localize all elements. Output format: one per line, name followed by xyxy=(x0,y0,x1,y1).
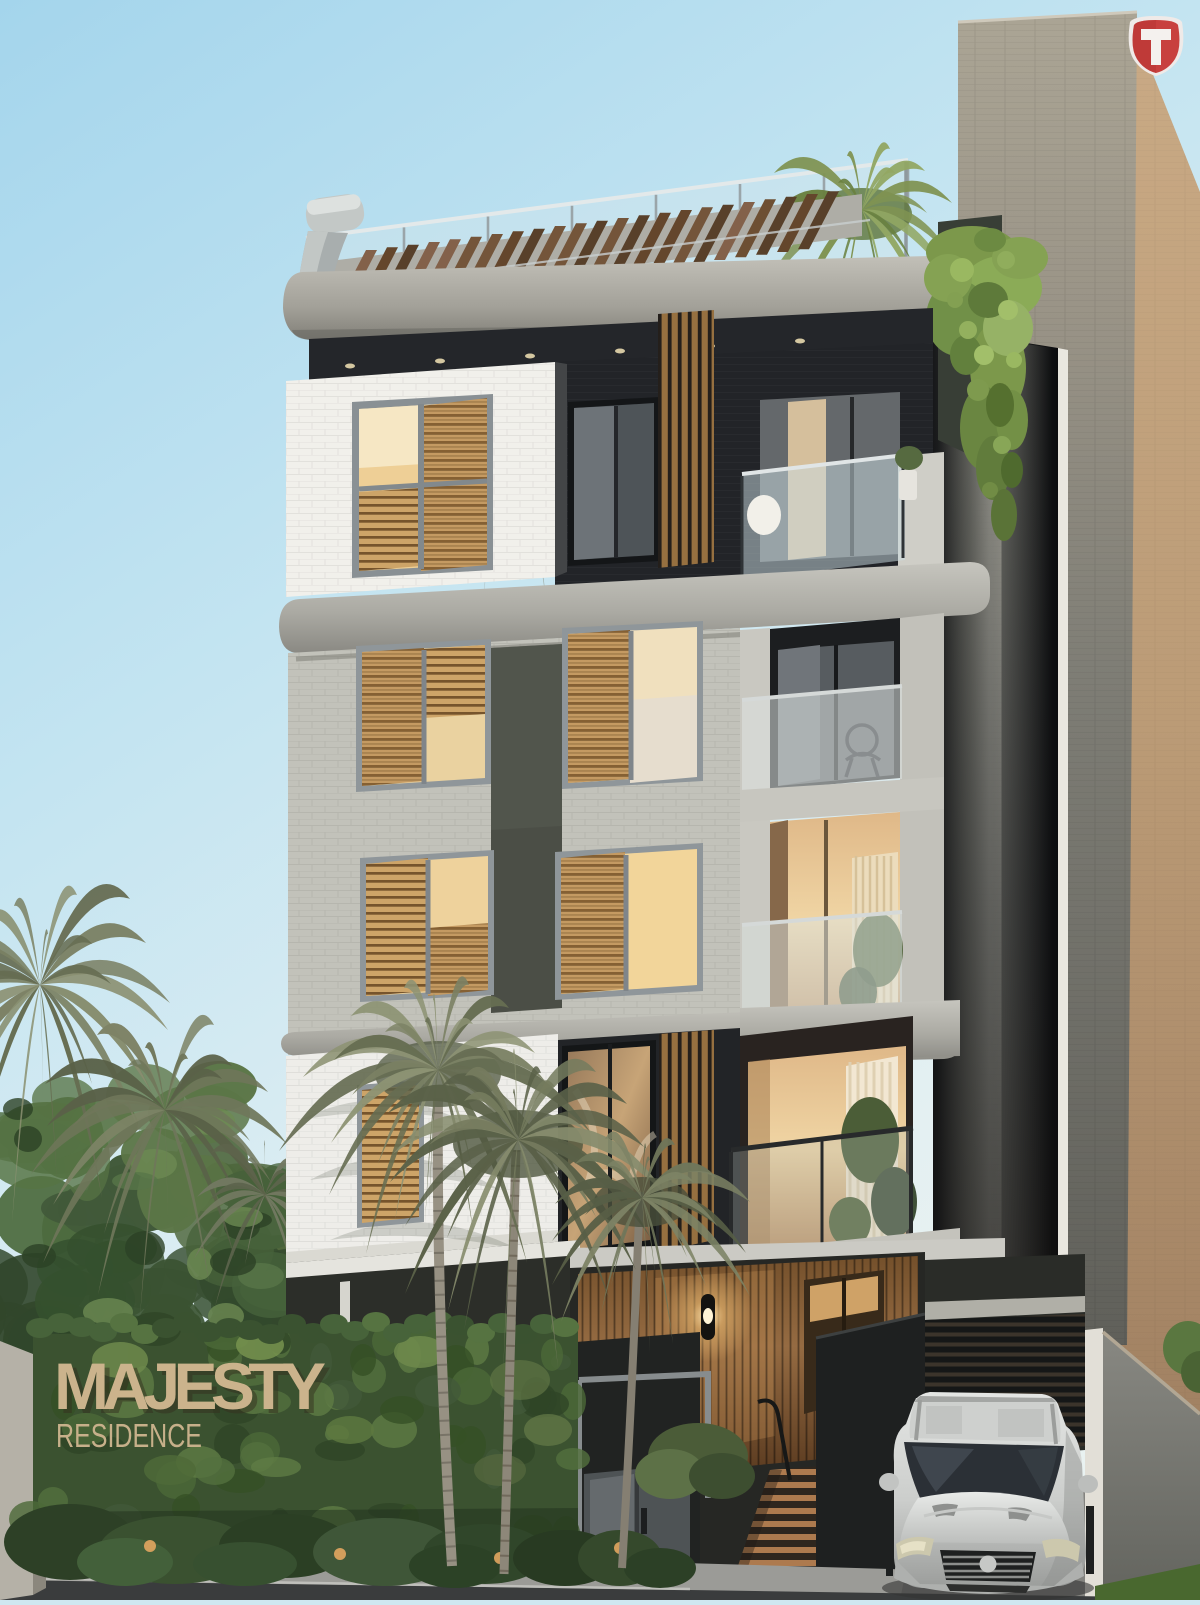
svg-text:RESIDENCE: RESIDENCE xyxy=(56,1417,202,1454)
svg-text:MAJESTY: MAJESTY xyxy=(54,1349,326,1423)
